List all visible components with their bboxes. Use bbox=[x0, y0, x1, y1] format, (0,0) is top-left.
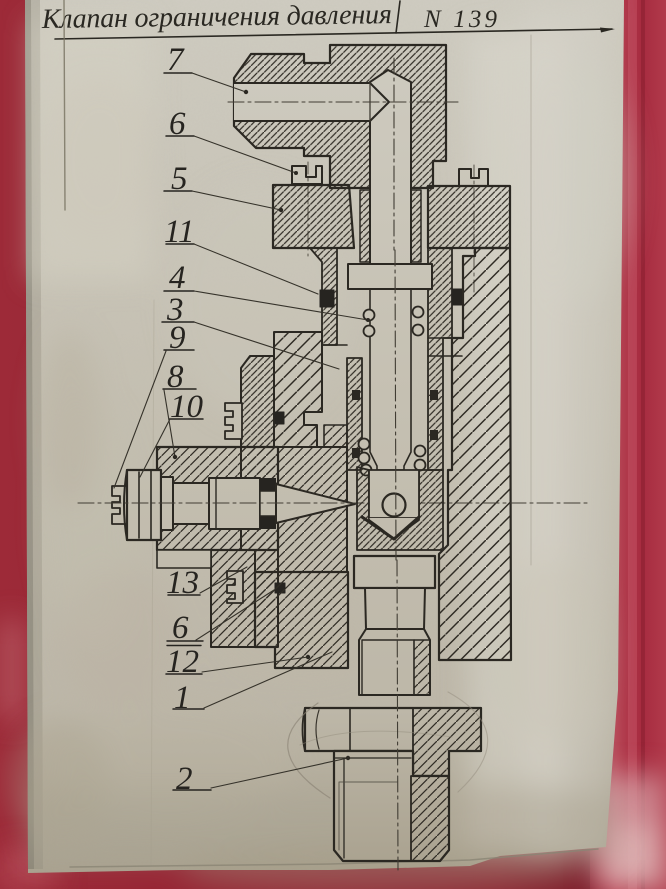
svg-text:N 139: N 139 bbox=[423, 6, 498, 33]
svg-text:2: 2 bbox=[176, 761, 193, 797]
svg-text:Клапан ограничения давления: Клапан ограничения давления bbox=[41, 0, 392, 35]
svg-text:1: 1 bbox=[174, 680, 191, 716]
